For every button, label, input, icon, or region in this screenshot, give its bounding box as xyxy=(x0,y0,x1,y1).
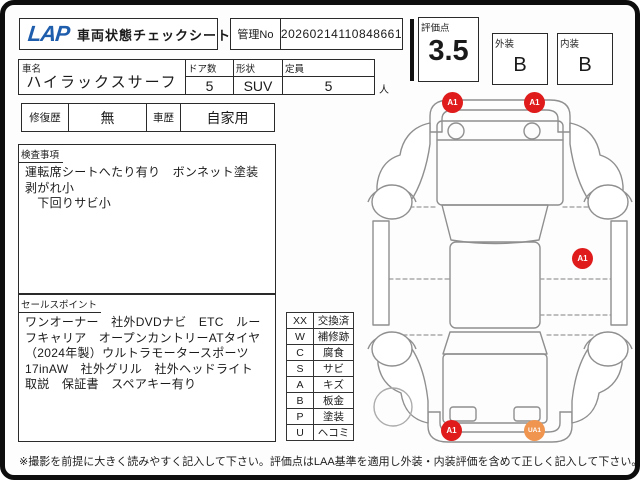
vehicle-spec-row: 車名 ハイラックスサーフ ドア数 5 形状 SUV 定員 5 xyxy=(18,59,375,95)
legend-code: U xyxy=(287,425,314,441)
vehicle-name-cell: 車名 ハイラックスサーフ xyxy=(19,60,186,94)
score-box: 評価点 3.5 xyxy=(418,17,479,82)
legend-label: サビ xyxy=(314,361,354,377)
legend-label: 腐食 xyxy=(314,345,354,361)
score-label: 評価点 xyxy=(419,19,454,35)
vehicle-name-value: ハイラックスサーフ xyxy=(19,71,185,92)
door-seam-lines xyxy=(389,207,611,335)
legend-code: XX xyxy=(287,313,314,329)
tailgate-panel xyxy=(443,354,547,423)
taillight-right xyxy=(514,407,540,421)
body-shape-label: 形状 xyxy=(234,60,282,77)
capacity-label: 定員 xyxy=(283,60,374,77)
hood-panel xyxy=(437,121,563,205)
left-rear-wheel xyxy=(372,332,412,366)
left-rocker-panel xyxy=(373,221,389,325)
taillight-left xyxy=(450,407,476,421)
right-rear-wheel xyxy=(588,332,628,366)
body-shape-cell: 形状 SUV xyxy=(234,60,283,94)
repair-history-row: 修復歴 無 車歴 自家用 xyxy=(21,103,275,132)
legend-row: P塗装 xyxy=(287,409,354,425)
repair-value: 無 xyxy=(69,104,147,131)
legend-code: C xyxy=(287,345,314,361)
right-side-panels xyxy=(570,123,632,423)
vehicle-check-sheet: LAP 車両状態チェックシート 管理No 20260214110848661 評… xyxy=(0,0,640,480)
doors-value: 5 xyxy=(186,77,233,94)
legend-row: Aキズ xyxy=(287,377,354,393)
exterior-grade-box: 外装 B xyxy=(492,33,548,85)
exterior-label: 外装 xyxy=(493,35,518,51)
hood-circle-right xyxy=(524,123,540,139)
repair-label: 修復歴 xyxy=(22,104,69,131)
legend-label: キズ xyxy=(314,377,354,393)
legend-code: W xyxy=(287,329,314,345)
doors-cell: ドア数 5 xyxy=(186,60,234,94)
damage-marker-rear-bumper-left: A1 xyxy=(441,420,462,441)
inspection-section: 検査事項 運転席シートへたり有り ボンネット塗装剥がれ小 下回りサビ小 xyxy=(18,144,276,294)
damage-marker-rear-bumper-right: UA1 xyxy=(524,420,545,441)
history-label: 車歴 xyxy=(147,104,181,131)
capacity-cell: 定員 5 xyxy=(283,60,374,94)
hood-circle-left xyxy=(448,123,464,139)
manage-no-label: 管理No xyxy=(231,19,281,49)
fold-mark xyxy=(410,19,414,81)
damage-marker-right-rear-door: A1 xyxy=(572,248,593,269)
legend-row: W補修跡 xyxy=(287,329,354,345)
damage-marker-front-bumper-right: A1 xyxy=(524,92,545,113)
sheet-title: 車両状態チェックシート xyxy=(77,25,231,44)
left-side-panels xyxy=(368,123,430,423)
interior-grade: B xyxy=(558,54,612,77)
doors-label: ドア数 xyxy=(186,60,233,77)
windshield xyxy=(442,205,548,244)
right-door-panel xyxy=(611,221,627,325)
inspection-notes: 運転席シートへたり有り ボンネット塗装剥がれ小 下回りサビ小 xyxy=(19,163,275,212)
manage-no-value: 20260214110848661 xyxy=(281,19,402,49)
roof-panel xyxy=(450,242,540,328)
history-value: 自家用 xyxy=(181,104,274,131)
manage-no-box: 管理No 20260214110848661 xyxy=(230,18,403,50)
interior-grade-box: 内装 B xyxy=(557,33,613,85)
legend-label: 塗装 xyxy=(314,409,354,425)
score-value: 3.5 xyxy=(419,35,478,68)
logo-box: LAP 車両状態チェックシート xyxy=(19,18,218,50)
legend-row: B板金 xyxy=(287,393,354,409)
legend-row: Uヘコミ xyxy=(287,425,354,441)
damage-marker-front-bumper-left: A1 xyxy=(442,92,463,113)
rear-window xyxy=(443,332,547,354)
body-shape-value: SUV xyxy=(234,77,282,94)
legend-code: A xyxy=(287,377,314,393)
legend-label: 交換済 xyxy=(314,313,354,329)
legend-row: C腐食 xyxy=(287,345,354,361)
lap-logo: LAP xyxy=(27,21,71,47)
car-diagram xyxy=(360,90,640,450)
legend-label: 補修跡 xyxy=(314,329,354,345)
sales-label: セールスポイント xyxy=(19,296,101,313)
interior-label: 内装 xyxy=(558,35,583,51)
inspection-label: 検査事項 xyxy=(19,146,63,163)
sales-section: セールスポイント ワンオーナー 社外DVDナビ ETC ルーフキャリア オープン… xyxy=(18,294,276,442)
right-front-wheel xyxy=(588,185,628,219)
legend-code: S xyxy=(287,361,314,377)
exterior-grade: B xyxy=(493,54,547,77)
damage-code-legend: XX交換済 W補修跡 C腐食 Sサビ Aキズ B板金 P塗装 Uヘコミ xyxy=(286,312,354,441)
sales-notes: ワンオーナー 社外DVDナビ ETC ルーフキャリア オープンカントリーATタイ… xyxy=(19,313,275,393)
legend-code: P xyxy=(287,409,314,425)
legend-row: XX交換済 xyxy=(287,313,354,329)
left-front-wheel xyxy=(372,185,412,219)
legend-row: Sサビ xyxy=(287,361,354,377)
legend-label: 板金 xyxy=(314,393,354,409)
legend-label: ヘコミ xyxy=(314,425,354,441)
footer-note: ※撮影を前提に大きく読みやすく記入して下さい。評価点はLAA基準を適用し外装・内… xyxy=(19,453,633,469)
legend-code: B xyxy=(287,393,314,409)
